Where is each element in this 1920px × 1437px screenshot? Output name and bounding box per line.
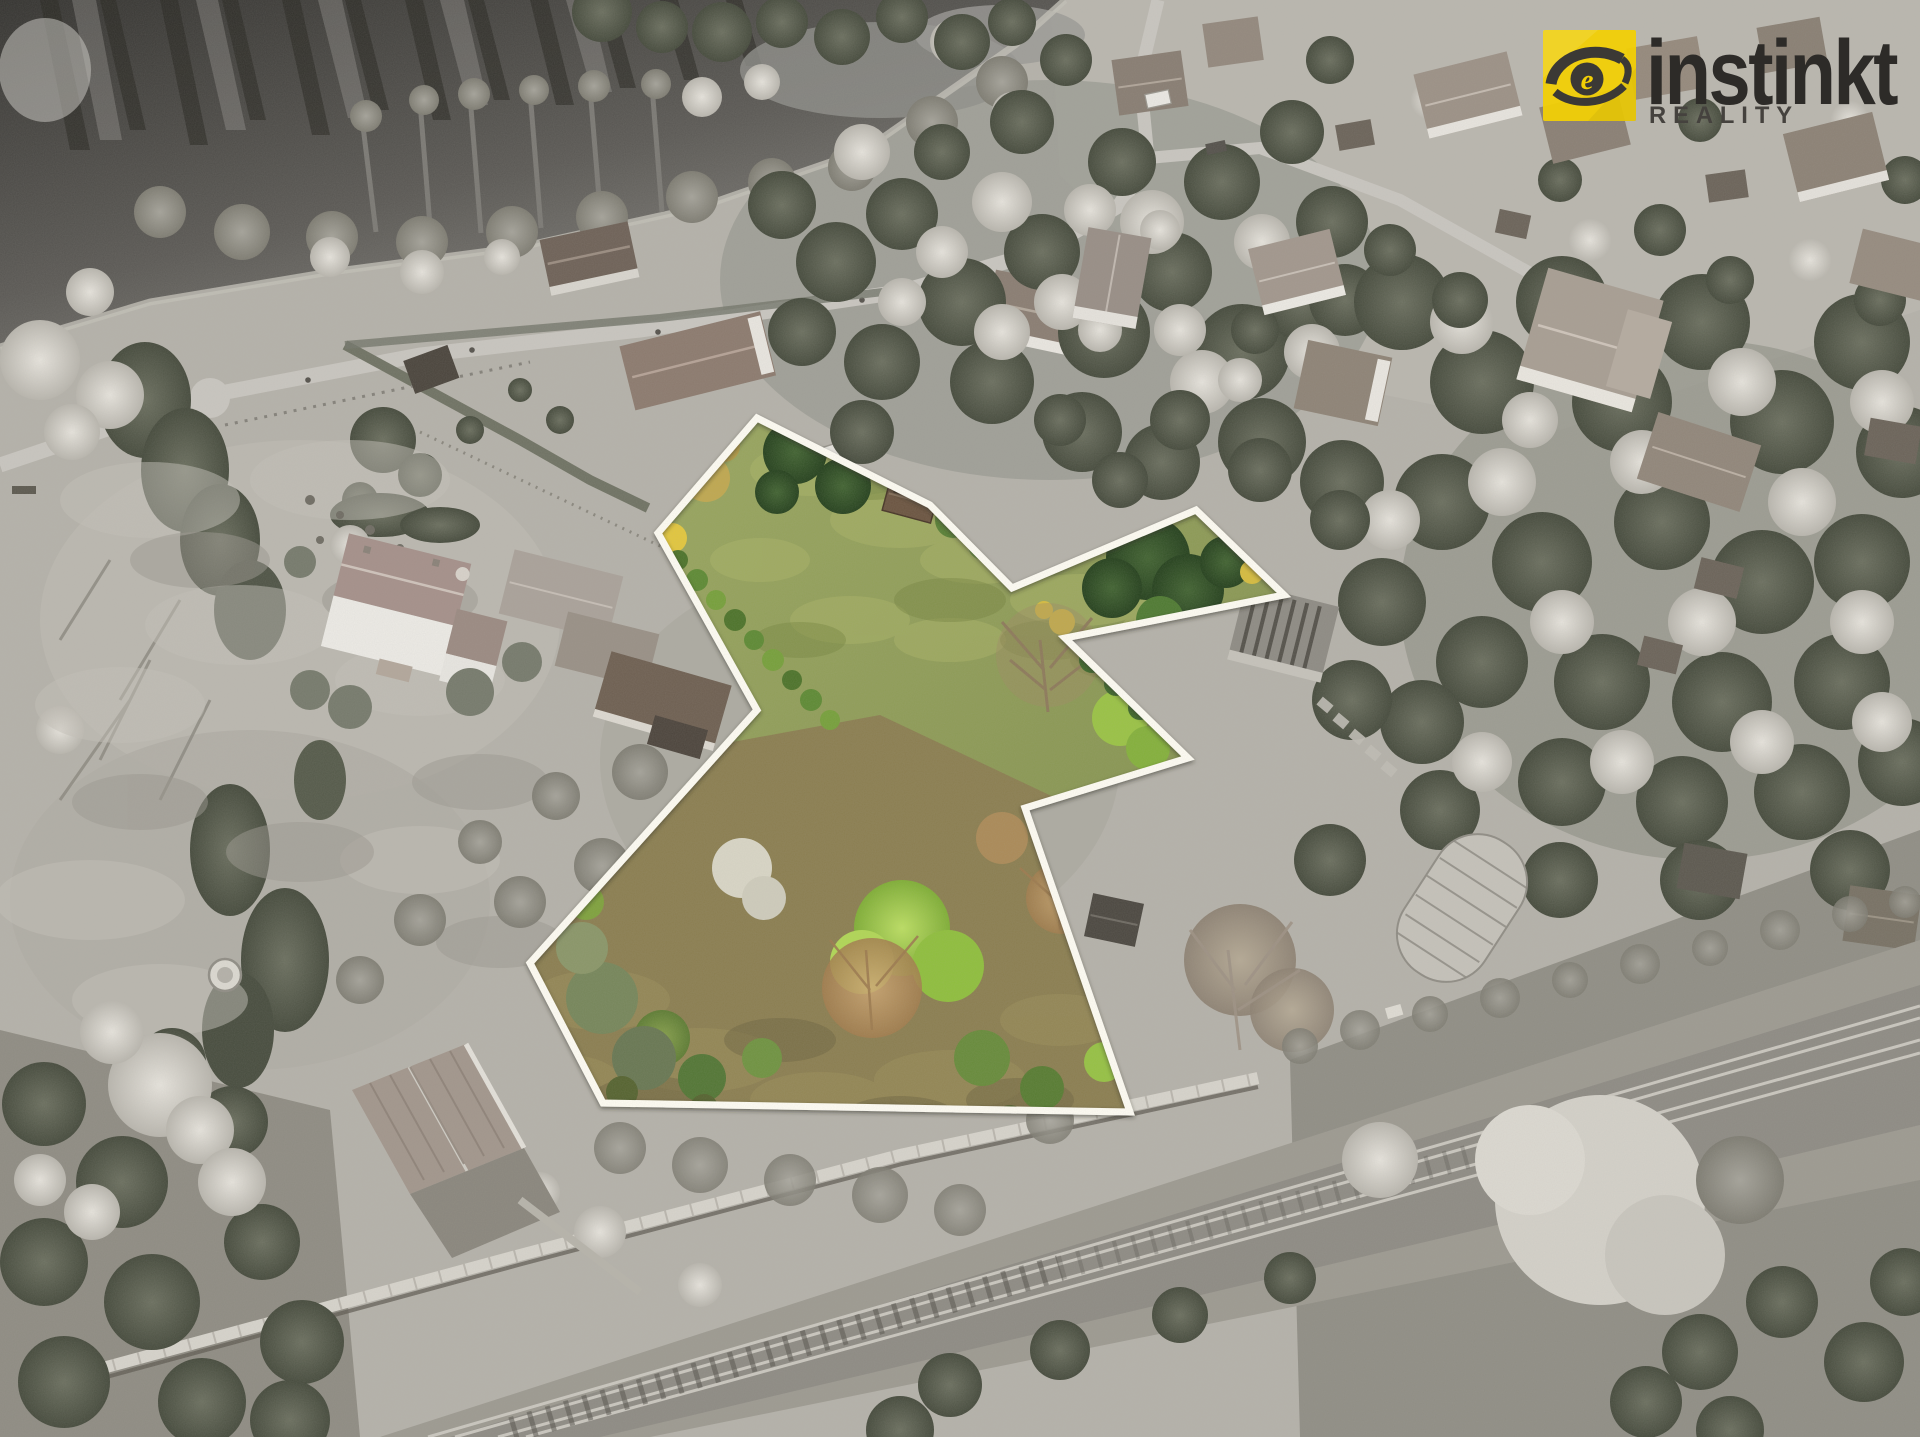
photo-grain bbox=[0, 0, 1920, 1437]
svg-text:e: e bbox=[1581, 64, 1594, 96]
aerial-photo: e instinkt REALITY bbox=[0, 0, 1920, 1437]
aerial-photo-canvas: e instinkt REALITY bbox=[0, 0, 1920, 1437]
brand-subtitle: REALITY bbox=[1649, 102, 1799, 129]
brand-logo: e instinkt REALITY bbox=[1543, 22, 1898, 129]
